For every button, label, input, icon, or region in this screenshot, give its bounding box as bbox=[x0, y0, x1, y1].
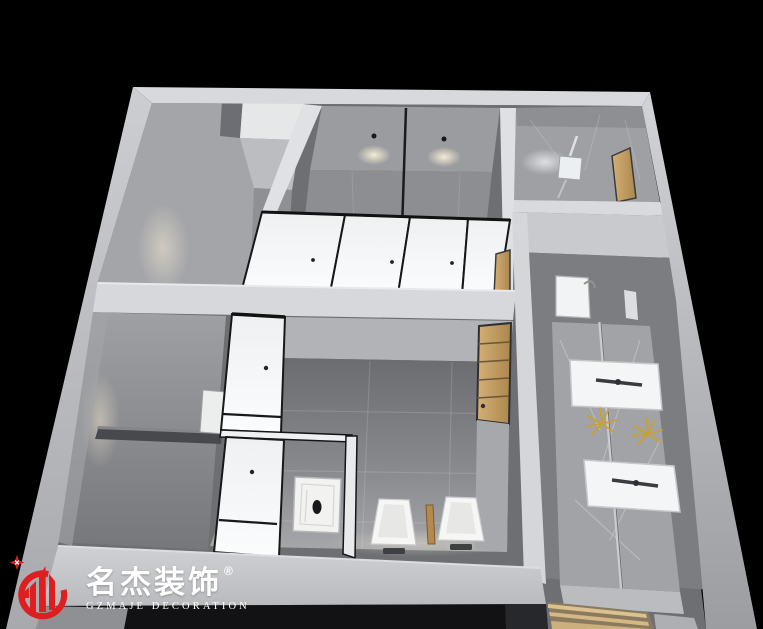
door-lock-knob bbox=[390, 260, 394, 264]
brand-name-cn: 名杰装饰 bbox=[86, 565, 222, 600]
shower-room bbox=[513, 106, 666, 216]
stall-door bbox=[330, 215, 410, 294]
louver-handle bbox=[481, 404, 485, 408]
downlight-glow bbox=[357, 145, 391, 165]
wooden-louver-door bbox=[477, 323, 511, 424]
door-lock-knob bbox=[250, 470, 254, 474]
door-lock-knob bbox=[311, 258, 315, 262]
wooden-door-edge bbox=[494, 250, 510, 296]
mirror-panel bbox=[624, 290, 638, 320]
squat-toilet bbox=[293, 477, 341, 533]
stall-door bbox=[398, 217, 468, 295]
sink-basin bbox=[570, 360, 662, 410]
door-lock-knob bbox=[450, 261, 454, 265]
registered-trademark-symbol: ® bbox=[224, 564, 233, 578]
buildings-in-open-ring-icon bbox=[18, 566, 67, 619]
shower-head bbox=[558, 156, 582, 180]
squat-toilet-drain bbox=[313, 500, 322, 514]
downlight-fixture bbox=[372, 134, 377, 139]
brand-name-en: GZMAJE DECORATION bbox=[86, 602, 250, 613]
corridor-upper-wall bbox=[513, 212, 672, 258]
logo-text: 名杰装饰® GZMAJE DECORATION bbox=[86, 567, 250, 613]
sink-basin bbox=[584, 460, 680, 512]
wall-wash-light bbox=[137, 204, 189, 292]
downlight-glow bbox=[427, 147, 461, 167]
logo-emblem bbox=[8, 554, 78, 626]
main-washroom bbox=[200, 314, 515, 558]
downlight-fixture bbox=[442, 137, 447, 142]
urinal-wood-divider bbox=[426, 505, 435, 544]
restroom-3d-dollhouse-render bbox=[0, 0, 763, 629]
partition-panel bbox=[343, 436, 357, 558]
toilet-stall-doors bbox=[242, 212, 510, 296]
floor-drain bbox=[383, 548, 405, 554]
stall-door bbox=[214, 437, 284, 557]
brand-logo: 名杰装饰® GZMAJE DECORATION bbox=[8, 554, 250, 626]
floor-drain bbox=[450, 544, 472, 550]
door-lock-knob bbox=[264, 366, 268, 370]
restroom-render-canvas: 名杰装饰® GZMAJE DECORATION bbox=[0, 0, 763, 629]
